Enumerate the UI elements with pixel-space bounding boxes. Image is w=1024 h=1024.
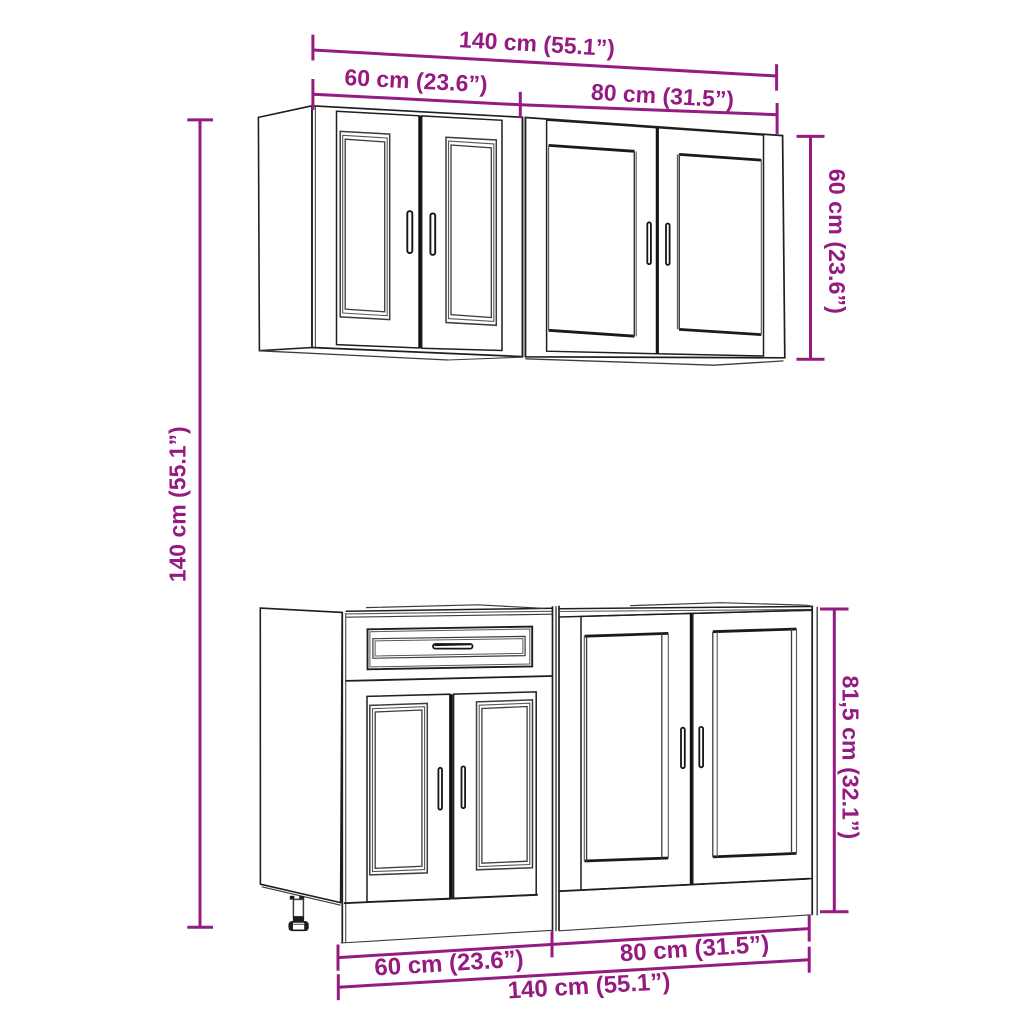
svg-text:60 cm (23.6”): 60 cm (23.6”): [824, 169, 850, 314]
svg-text:81,5 cm (32.1”): 81,5 cm (32.1”): [837, 676, 863, 840]
svg-text:140 cm (55.1”): 140 cm (55.1”): [165, 426, 191, 582]
